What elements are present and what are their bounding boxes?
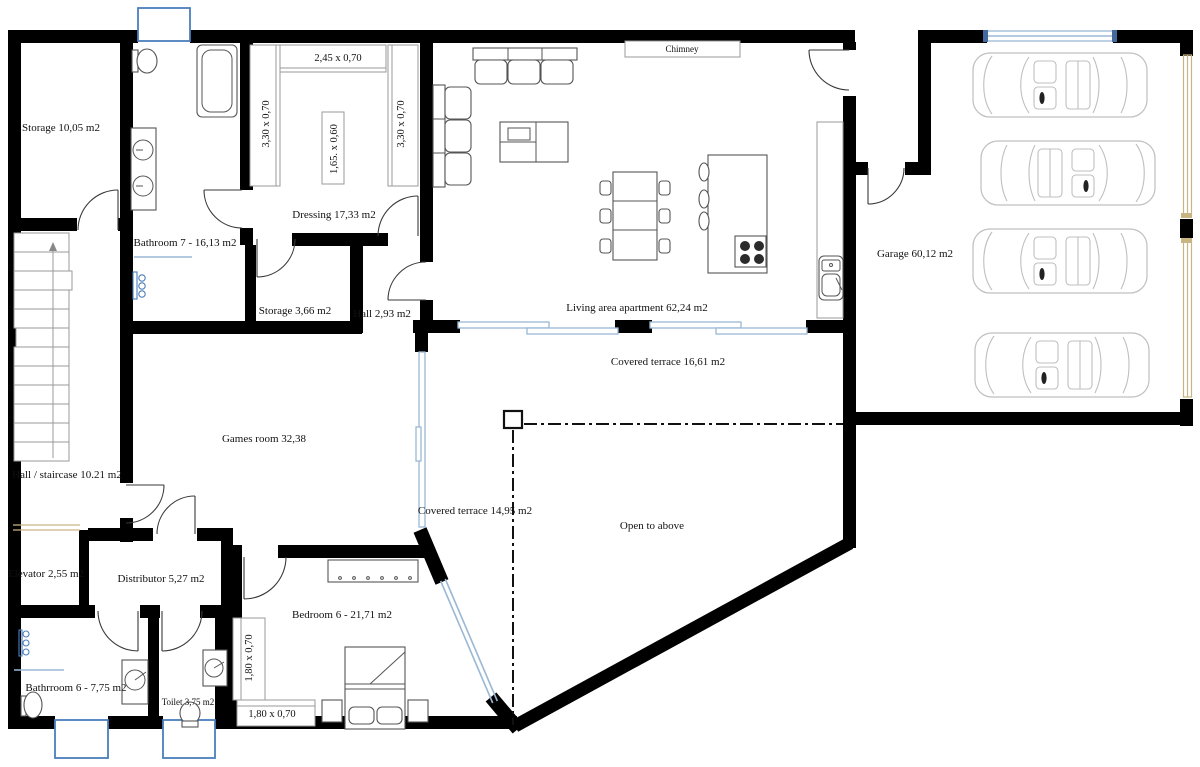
label-dim-dressing-top: 2,45 x 0,70	[314, 53, 361, 64]
wall-segment	[855, 162, 868, 175]
living-window	[527, 328, 618, 334]
living-window	[650, 322, 741, 328]
living-window	[716, 328, 807, 334]
wall-segment	[132, 321, 362, 334]
toilet-icon	[24, 692, 42, 718]
label-bedroom: Bedroom 6 - 21,71 m2	[292, 609, 392, 621]
car-icon	[981, 141, 1155, 205]
floor-plan-svg: Storage 10,05 m2 Bathroom 7 - 16,13 m2 D…	[0, 0, 1200, 767]
toilet-seat	[182, 721, 198, 727]
radiator-coil	[23, 649, 29, 655]
sofa-cushion	[508, 60, 540, 84]
sofa-cushion	[445, 120, 471, 152]
sofa-back	[473, 48, 577, 60]
radiator-coil	[139, 283, 145, 289]
label-elevator: Elevator 2,55 m2	[8, 568, 84, 580]
wall-segment	[8, 30, 138, 43]
bathroom6-toilet-fixtures	[14, 630, 227, 727]
stove-burner	[740, 241, 750, 251]
wall-segment	[413, 320, 460, 333]
garage-door-tick	[1181, 213, 1192, 218]
label-toilet: Toilet 3,75 m2	[162, 697, 215, 707]
label-bathroom7: Bathroom 7 - 16,13 m2	[134, 237, 237, 249]
wall-segment	[852, 412, 1193, 425]
dining-table	[613, 172, 657, 260]
garage-cars	[973, 53, 1155, 397]
stair-step	[16, 328, 69, 347]
stair-step	[14, 271, 72, 290]
nightstand	[408, 700, 428, 722]
stair-step	[14, 366, 69, 385]
bathroom7-fixtures	[131, 45, 237, 299]
stove-burner	[740, 254, 750, 264]
label-hall-staircase: Hall / staircase 10.21 m2	[12, 469, 122, 481]
wall-segment	[806, 320, 843, 333]
chair-icon	[659, 209, 670, 223]
label-dim-dressing-right: 3,30 x 0,70	[396, 100, 407, 147]
door-hall-living	[388, 262, 426, 300]
door-vestibule-garage	[868, 168, 904, 204]
stair-step	[14, 347, 69, 366]
label-dressing: Dressing 17,33 m2	[292, 209, 375, 221]
label-games-room: Games room 32,38	[222, 433, 307, 445]
wall-segment	[415, 333, 428, 352]
wall-segment	[240, 228, 253, 245]
wall-segment	[278, 545, 427, 558]
car-icon	[973, 53, 1147, 117]
windows	[55, 8, 1117, 758]
wall-segment	[190, 30, 855, 43]
radiator-coil	[23, 640, 29, 646]
door-dressing-hall	[378, 196, 418, 236]
stair-step	[14, 290, 69, 309]
wall-segment	[843, 42, 856, 50]
chair-icon	[600, 209, 611, 223]
door-storage-small	[257, 239, 295, 277]
door-bathroom6	[98, 611, 138, 651]
stool-icon	[699, 190, 709, 208]
label-dim-dressing-island: 1,65. x 0,60	[329, 124, 340, 174]
wall-segment	[843, 96, 856, 548]
car-icon	[975, 333, 1149, 397]
label-garage: Garage 60,12 m2	[877, 248, 953, 260]
toilet-icon	[137, 49, 157, 73]
stool-icon	[699, 212, 709, 230]
radiator-coil	[139, 275, 145, 281]
wall-segment	[905, 162, 931, 175]
radiator-coil	[139, 291, 145, 297]
wall-segment	[148, 617, 159, 729]
sofa-cushion	[445, 87, 471, 119]
nightstand	[322, 700, 342, 722]
bedroom-furniture	[233, 560, 428, 729]
wall-segment	[120, 42, 133, 483]
wall-segment	[615, 320, 652, 333]
wall-segment	[292, 233, 388, 246]
wall-segment	[1180, 219, 1193, 238]
wall-segment	[918, 30, 931, 162]
door-living-vestibule	[809, 50, 849, 90]
label-distributor: Distributor 5,27 m2	[117, 573, 204, 585]
door-distributor-games	[157, 496, 195, 534]
staircase	[14, 233, 72, 461]
sofa-cushion	[475, 60, 507, 84]
wall-segment	[1180, 30, 1193, 56]
wall-segment	[8, 605, 95, 618]
sofa-cushion	[445, 153, 471, 185]
bedroom-window	[441, 581, 493, 703]
radiator-icon	[133, 272, 137, 299]
door-toilet	[162, 611, 202, 651]
pillow-icon	[349, 707, 374, 724]
stair-step	[14, 404, 69, 423]
bedroom-window	[445, 579, 497, 701]
chair-icon	[659, 239, 670, 253]
label-chimney: Chimney	[666, 44, 699, 54]
chair-icon	[600, 181, 611, 195]
label-terrace-top: Covered terrace 16,61 m2	[611, 356, 725, 368]
door-bathroom7	[204, 190, 242, 228]
wall-segment	[918, 30, 987, 43]
window-box-bottom-left	[55, 720, 108, 758]
wall-segment	[88, 528, 153, 541]
wall-diagonal	[515, 543, 850, 726]
door-storage-top	[78, 190, 118, 230]
stair-step	[14, 442, 69, 461]
wall-segment	[420, 30, 433, 262]
stair-step	[14, 309, 69, 328]
sofa-cushion	[541, 60, 573, 84]
stove-burner	[754, 241, 764, 251]
window-box-top	[138, 8, 190, 41]
stair-step	[14, 423, 69, 442]
floor-plan: Storage 10,05 m2 Bathroom 7 - 16,13 m2 D…	[0, 0, 1200, 767]
stool-icon	[699, 163, 709, 181]
living-furniture	[433, 41, 843, 318]
wall-segment	[245, 245, 256, 323]
label-storage-small: Storage 3,66 m2	[259, 305, 331, 317]
living-window	[458, 322, 549, 328]
stair-step	[14, 233, 69, 252]
label-open-above: Open to above	[620, 520, 684, 532]
pillow-icon	[377, 707, 402, 724]
column	[504, 411, 522, 428]
garage-window-cap	[983, 30, 988, 42]
stair-step	[14, 252, 69, 271]
label-dim-dressing-left: 3,30 x 0,70	[261, 100, 272, 147]
label-dim-bedroom-closet-v: 1,80 x 0,70	[244, 634, 255, 681]
radiator-coil	[23, 631, 29, 637]
label-dim-bedroom-closet-h: 1,80 x 0,70	[248, 709, 295, 720]
doors	[78, 50, 904, 651]
garage-door-tick	[1181, 238, 1192, 243]
wall-segment	[20, 218, 77, 231]
wall-segment	[140, 605, 160, 618]
sofa-back	[433, 85, 445, 187]
chair-icon	[600, 239, 611, 253]
label-living: Living area apartment 62,24 m2	[566, 302, 707, 314]
chair-icon	[659, 181, 670, 195]
label-hall-small: Hall 2,93 m2	[353, 308, 411, 320]
label-bathroom6: Bathrroom 6 - 7,75 m2	[25, 682, 126, 694]
label-terrace-left: Covered terrace 14,95 m2	[418, 505, 532, 517]
garage-window-cap	[1112, 30, 1117, 42]
stove-burner	[754, 254, 764, 264]
label-storage-top: Storage 10,05 m2	[22, 122, 100, 134]
door-distributor-bedroom	[244, 557, 286, 599]
door-staircase-games	[126, 485, 164, 523]
games-window-pane	[416, 427, 421, 461]
stair-step	[14, 385, 69, 404]
car-icon	[973, 229, 1147, 293]
